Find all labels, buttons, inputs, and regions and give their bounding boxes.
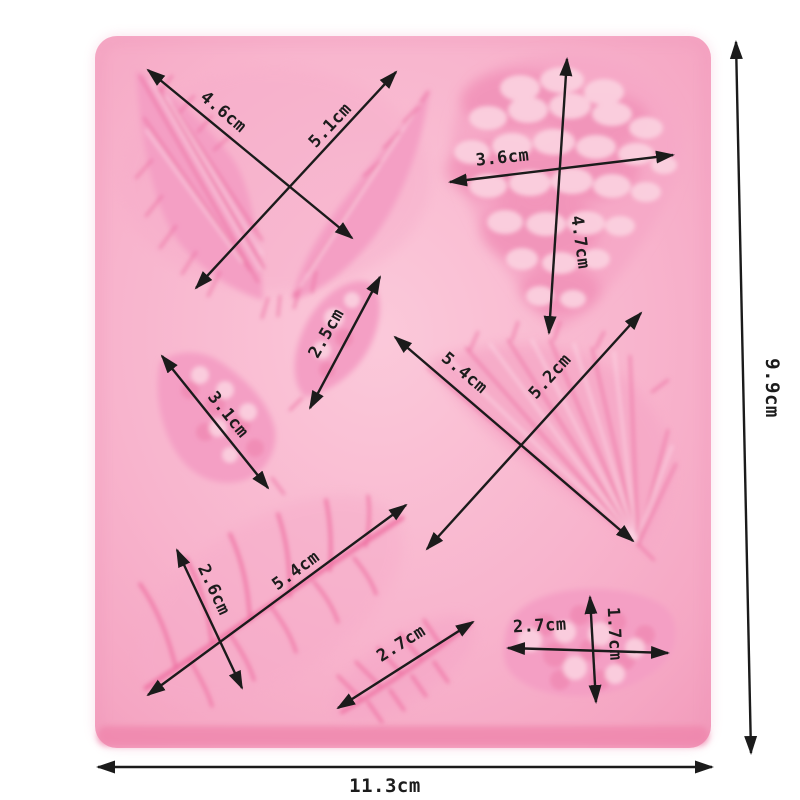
- mold-photo-canvas: 4.6cm 5.1cm 3.6cm 4.7cm 2.5cm 3.1cm 5.4c…: [0, 0, 800, 800]
- dim-arrow-overall-height: [736, 42, 751, 753]
- mold-bottom-rim: [97, 726, 709, 746]
- dim-label-ovalcone-width: 2.7cm: [512, 615, 567, 638]
- dim-label-ovalcone-height: 1.7cm: [603, 606, 626, 661]
- dim-label-overall-height: 9.9cm: [761, 358, 783, 418]
- product-photo: 4.6cm 5.1cm 3.6cm 4.7cm 2.5cm 3.1cm 5.4c…: [0, 0, 800, 800]
- dim-label-overall-width: 11.3cm: [349, 775, 421, 797]
